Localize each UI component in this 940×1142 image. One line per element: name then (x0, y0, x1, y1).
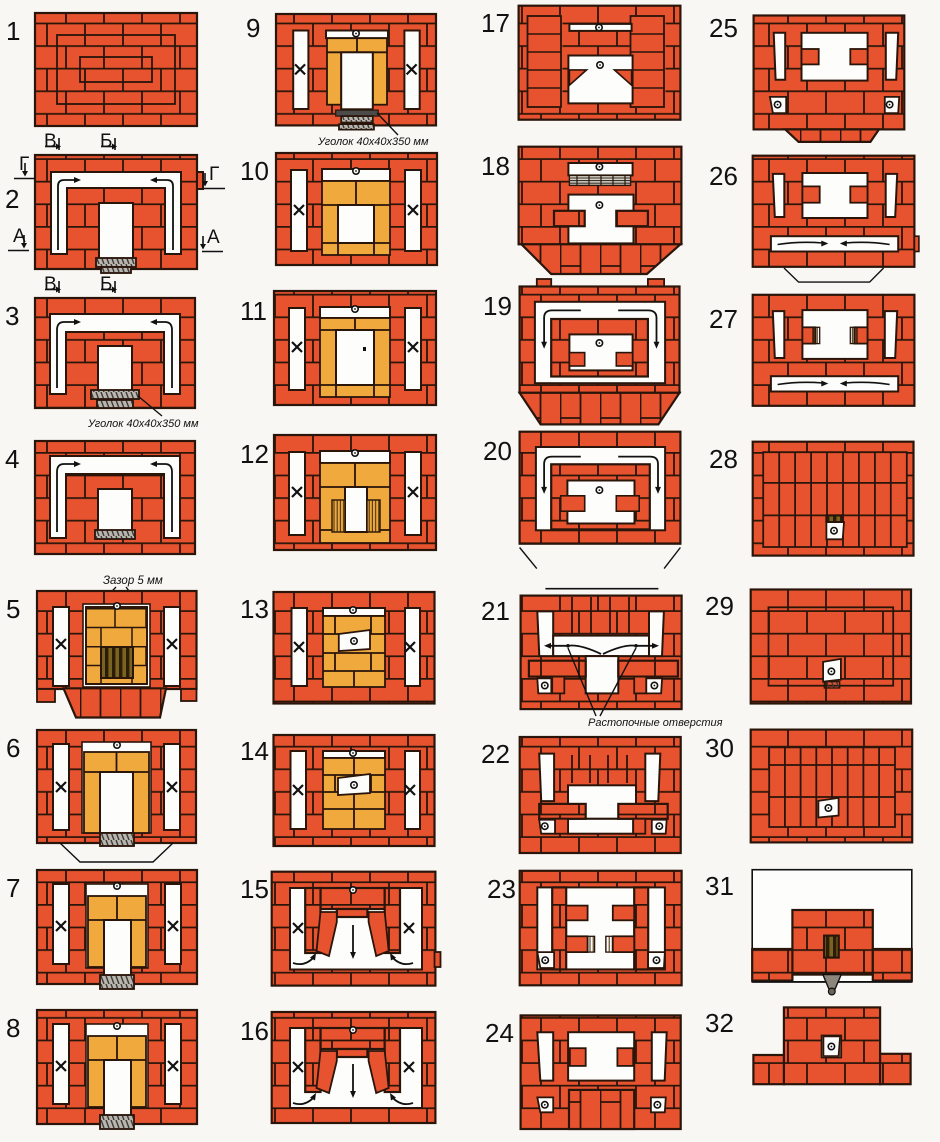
svg-text:Б: Б (100, 131, 112, 152)
svg-text:4: 4 (5, 444, 19, 474)
svg-text:15: 15 (240, 874, 269, 904)
svg-text:25: 25 (709, 13, 738, 43)
svg-text:11: 11 (240, 296, 267, 326)
svg-text:26: 26 (709, 161, 738, 191)
svg-text:6: 6 (6, 733, 20, 763)
svg-text:21: 21 (481, 596, 510, 626)
svg-text:Б: Б (100, 274, 112, 295)
svg-text:1: 1 (6, 16, 20, 46)
svg-text:20: 20 (483, 436, 512, 466)
svg-text:7: 7 (6, 873, 20, 903)
svg-text:8: 8 (6, 1013, 20, 1043)
svg-text:32: 32 (705, 1008, 734, 1038)
svg-text:16: 16 (240, 1016, 269, 1046)
svg-text:Растопочные отверстия: Растопочные отверстия (588, 717, 723, 729)
svg-text:29: 29 (705, 591, 734, 621)
svg-text:13: 13 (240, 594, 269, 624)
svg-text:3: 3 (5, 301, 19, 331)
svg-text:Г: Г (209, 164, 219, 185)
svg-text:17: 17 (481, 8, 510, 38)
svg-text:12: 12 (240, 439, 269, 469)
svg-text:31: 31 (705, 871, 734, 901)
svg-text:А: А (207, 227, 220, 248)
svg-text:18: 18 (481, 151, 510, 181)
svg-text:5: 5 (6, 594, 20, 624)
svg-text:Зазор 5 мм: Зазор 5 мм (103, 575, 163, 587)
svg-text:9: 9 (246, 13, 260, 43)
svg-text:19: 19 (483, 291, 512, 321)
svg-text:2: 2 (5, 184, 19, 214)
svg-text:Уголок 40х40х350 мм: Уголок 40х40х350 мм (87, 418, 199, 430)
svg-text:30: 30 (705, 733, 734, 763)
svg-text:Уголок 40х40х350 мм: Уголок 40х40х350 мм (317, 136, 429, 148)
svg-text:В: В (44, 131, 57, 152)
svg-text:28: 28 (709, 444, 738, 474)
svg-text:10: 10 (240, 156, 269, 186)
svg-text:27: 27 (709, 304, 738, 334)
svg-text:22: 22 (481, 739, 510, 769)
svg-text:В: В (44, 274, 57, 295)
svg-text:14: 14 (240, 736, 269, 766)
svg-text:23: 23 (487, 874, 516, 904)
svg-text:24: 24 (485, 1018, 514, 1048)
